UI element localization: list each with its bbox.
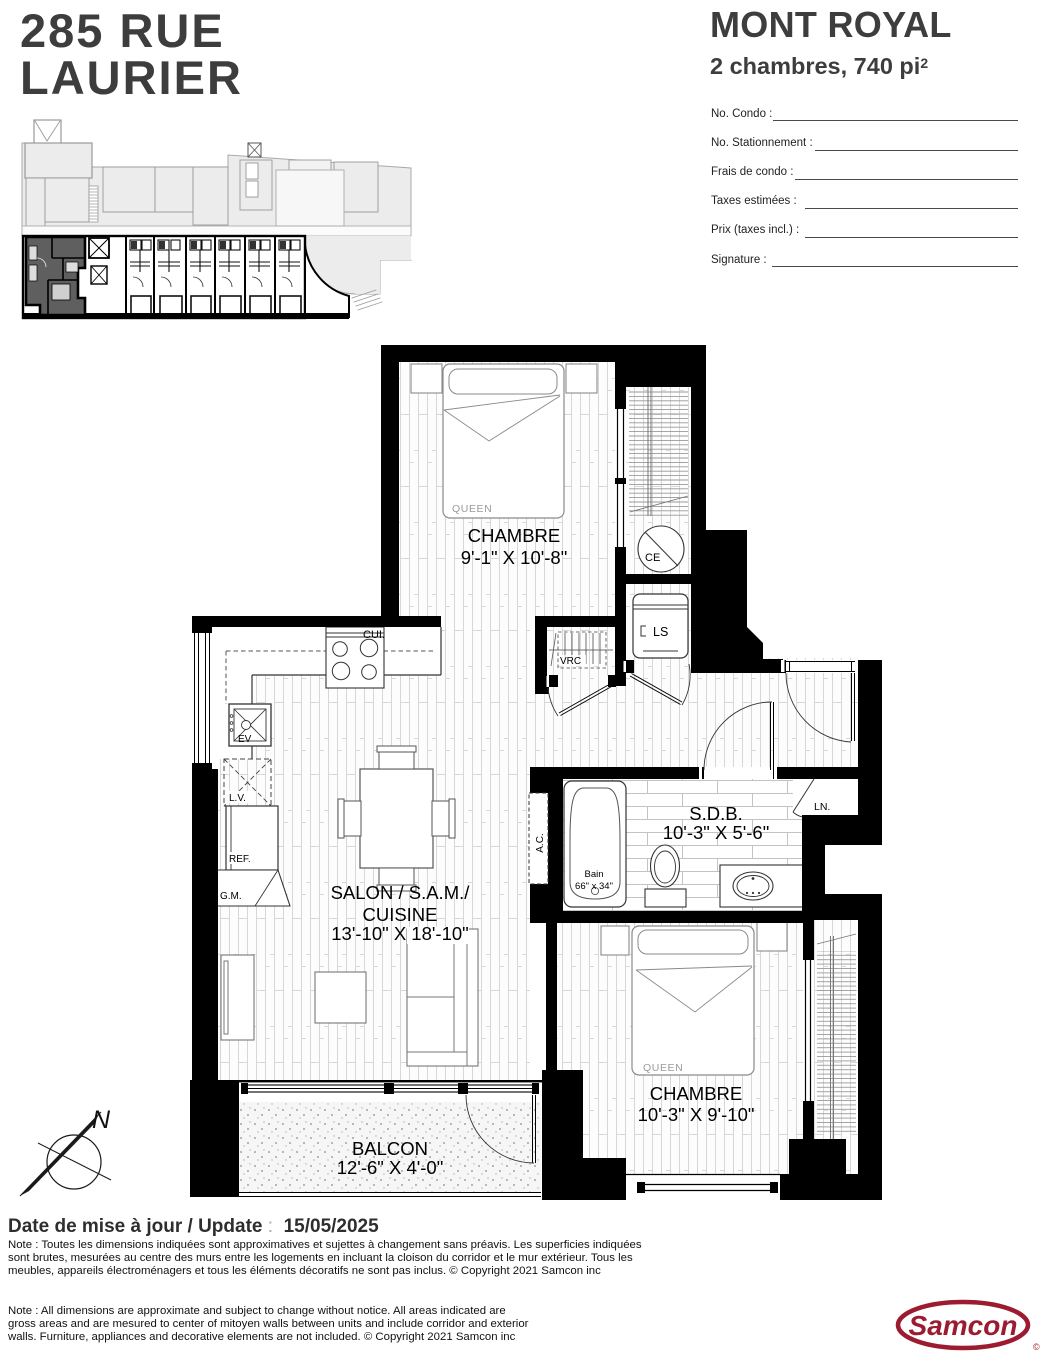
svg-text:S.D.B.: S.D.B. — [689, 803, 742, 824]
svg-text:10'-3" X 9'-10": 10'-3" X 9'-10" — [638, 1104, 755, 1125]
svg-text:REF.: REF. — [229, 854, 251, 865]
svg-text:CUI.: CUI. — [363, 629, 385, 641]
svg-text:EV: EV — [238, 734, 252, 745]
svg-text:CHAMBRE: CHAMBRE — [650, 1083, 743, 1104]
svg-text:66" x 34": 66" x 34" — [575, 881, 613, 892]
svg-text:A.C.: A.C. — [535, 833, 546, 852]
svg-text:10'-3" X 5'-6": 10'-3" X 5'-6" — [663, 822, 770, 843]
svg-text:CUISINE: CUISINE — [362, 904, 437, 925]
svg-text:BALCON: BALCON — [352, 1138, 428, 1159]
svg-text:SALON / S.A.M./: SALON / S.A.M./ — [331, 882, 471, 903]
svg-text:©: © — [1033, 1342, 1040, 1352]
svg-text:Bain: Bain — [584, 869, 603, 880]
svg-text:13'-10" X 18'-10": 13'-10" X 18'-10" — [331, 923, 468, 944]
svg-text:9'-1" X 10'-8": 9'-1" X 10'-8" — [461, 547, 568, 568]
svg-text:L.V.: L.V. — [229, 793, 246, 804]
svg-text:Samcon: Samcon — [909, 1310, 1018, 1341]
svg-text:QUEEN: QUEEN — [643, 1062, 683, 1074]
svg-text:QUEEN: QUEEN — [452, 503, 492, 515]
svg-text:N: N — [92, 1106, 111, 1134]
svg-text:G.M.: G.M. — [220, 891, 242, 902]
svg-text:12'-6" X 4'-0": 12'-6" X 4'-0" — [337, 1157, 444, 1178]
svg-text:LN.: LN. — [814, 801, 830, 813]
svg-text:VRC: VRC — [560, 656, 581, 667]
svg-text:LS: LS — [653, 625, 668, 639]
svg-text:CHAMBRE: CHAMBRE — [468, 525, 561, 546]
svg-text:CE: CE — [645, 552, 660, 564]
